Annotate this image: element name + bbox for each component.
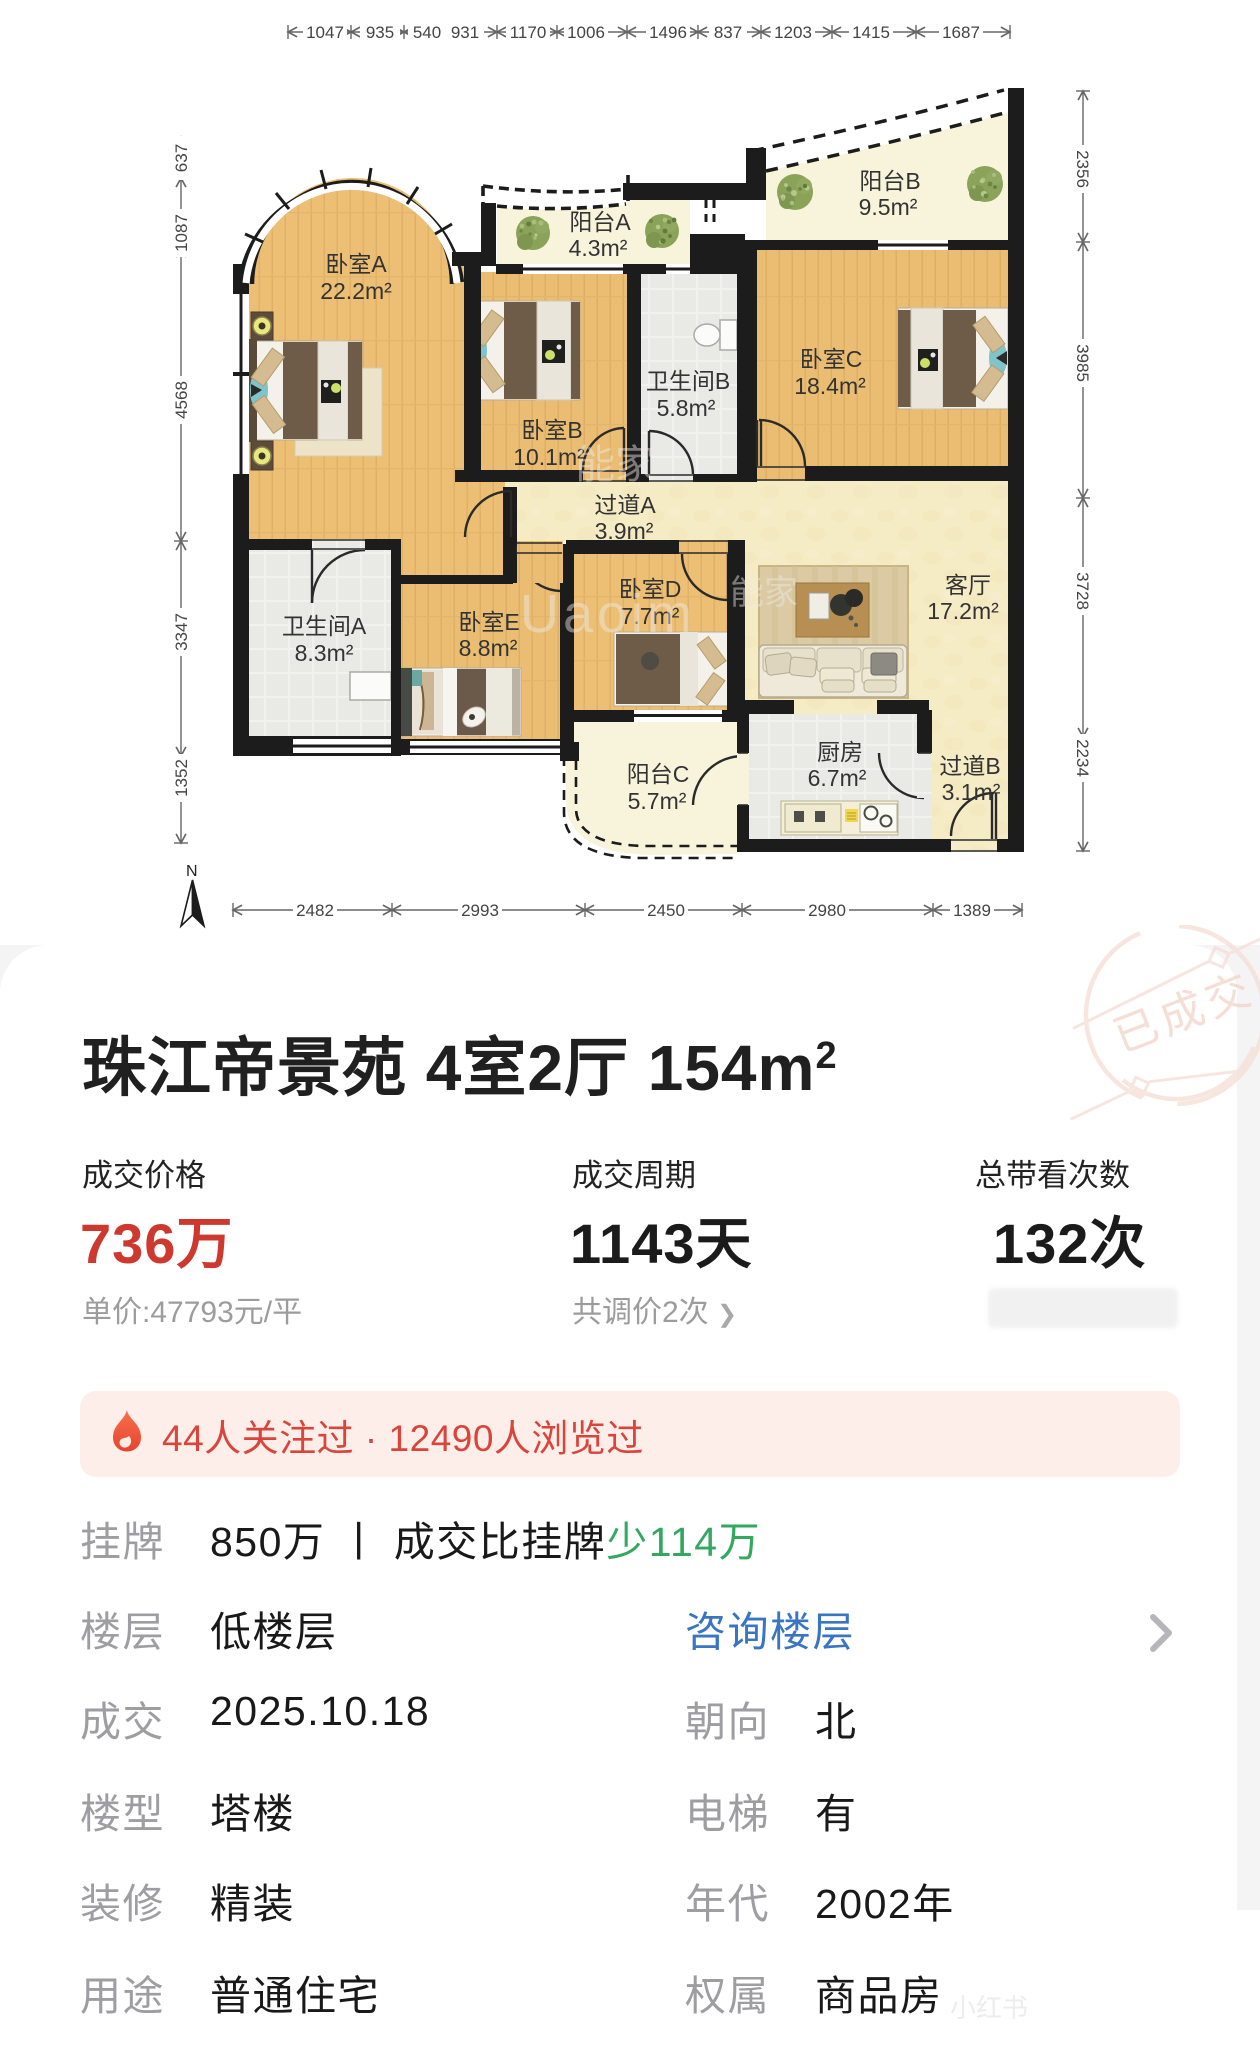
svg-text:3347: 3347: [172, 613, 191, 651]
svg-text:1170: 1170: [510, 23, 547, 42]
svg-text:2980: 2980: [808, 901, 846, 920]
svg-text:1006: 1006: [567, 23, 605, 42]
svg-text:能家: 能家: [575, 443, 655, 487]
svg-text:1415: 1415: [852, 23, 890, 42]
svg-text:2356: 2356: [1073, 150, 1092, 188]
svg-text:卫生间A: 卫生间A: [282, 613, 367, 639]
svg-text:8.3m²: 8.3m²: [295, 640, 354, 666]
svg-text:N: N: [186, 863, 198, 880]
svg-text:过道A: 过道A: [594, 492, 656, 518]
svg-text:4568: 4568: [172, 381, 191, 419]
svg-text:2482: 2482: [296, 901, 334, 920]
svg-text:能家: 能家: [730, 574, 798, 612]
svg-text:阳台A: 阳台A: [569, 209, 631, 235]
svg-text:931: 931: [451, 23, 479, 42]
svg-text:9.5m²: 9.5m²: [859, 194, 918, 220]
svg-text:1389: 1389: [953, 901, 991, 920]
svg-text:935: 935: [366, 23, 394, 42]
svg-text:2234: 2234: [1073, 739, 1092, 777]
svg-text:1203: 1203: [774, 23, 812, 42]
svg-text:540: 540: [413, 23, 441, 42]
svg-text:1087: 1087: [172, 214, 191, 252]
svg-text:3985: 3985: [1073, 344, 1092, 382]
svg-text:5.7m²: 5.7m²: [628, 788, 687, 814]
svg-text:厨房: 厨房: [817, 739, 863, 765]
svg-text:1047: 1047: [306, 23, 344, 42]
svg-text:Uaoim: Uaoim: [520, 584, 696, 644]
svg-text:客厅: 客厅: [945, 572, 991, 598]
svg-text:过道B: 过道B: [939, 753, 1000, 779]
svg-text:837: 837: [714, 23, 742, 42]
svg-text:卧室C: 卧室C: [800, 346, 863, 372]
svg-text:3728: 3728: [1073, 572, 1092, 610]
svg-text:1687: 1687: [942, 23, 980, 42]
svg-text:已成交: 已成交: [1107, 964, 1260, 1062]
svg-text:阳台C: 阳台C: [627, 761, 690, 787]
svg-text:卧室B: 卧室B: [521, 417, 582, 443]
svg-text:卧室A: 卧室A: [325, 251, 387, 277]
svg-text:3.1m²: 3.1m²: [942, 779, 1001, 805]
svg-text:4.3m²: 4.3m²: [569, 235, 628, 261]
svg-text:18.4m²: 18.4m²: [794, 373, 866, 399]
svg-text:2450: 2450: [647, 901, 685, 920]
svg-text:1352: 1352: [172, 759, 191, 797]
svg-text:5.8m²: 5.8m²: [657, 395, 716, 421]
svg-text:3.9m²: 3.9m²: [595, 518, 654, 544]
svg-text:卧室E: 卧室E: [458, 609, 519, 635]
svg-text:1496: 1496: [649, 23, 687, 42]
svg-text:8.8m²: 8.8m²: [459, 635, 518, 661]
svg-text:卫生间B: 卫生间B: [646, 368, 730, 394]
svg-text:637: 637: [172, 144, 191, 172]
svg-text:17.2m²: 17.2m²: [927, 598, 999, 624]
svg-text:2993: 2993: [461, 901, 499, 920]
svg-text:阳台B: 阳台B: [859, 168, 920, 194]
svg-text:22.2m²: 22.2m²: [320, 278, 392, 304]
svg-text:6.7m²: 6.7m²: [808, 765, 867, 791]
